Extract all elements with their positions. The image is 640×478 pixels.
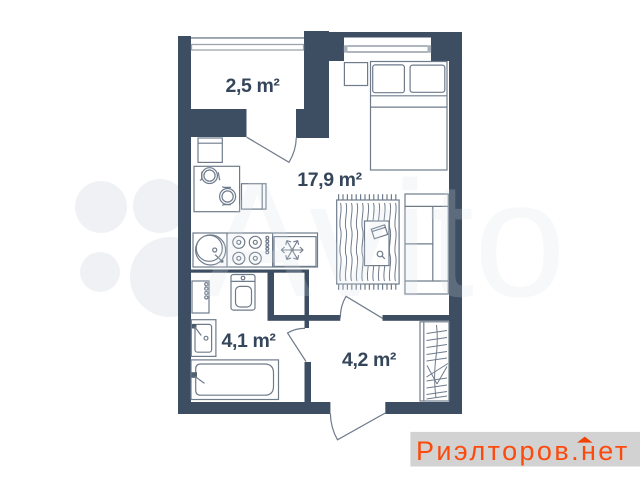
svg-text:4,2 m²: 4,2 m² xyxy=(342,349,397,371)
svg-text:2,5 m²: 2,5 m² xyxy=(226,75,281,97)
svg-text:4,1 m²: 4,1 m² xyxy=(222,330,277,352)
svg-text:Риэлторов.нет: Риэлторов.нет xyxy=(416,436,630,466)
svg-text:Avito: Avito xyxy=(202,147,566,331)
